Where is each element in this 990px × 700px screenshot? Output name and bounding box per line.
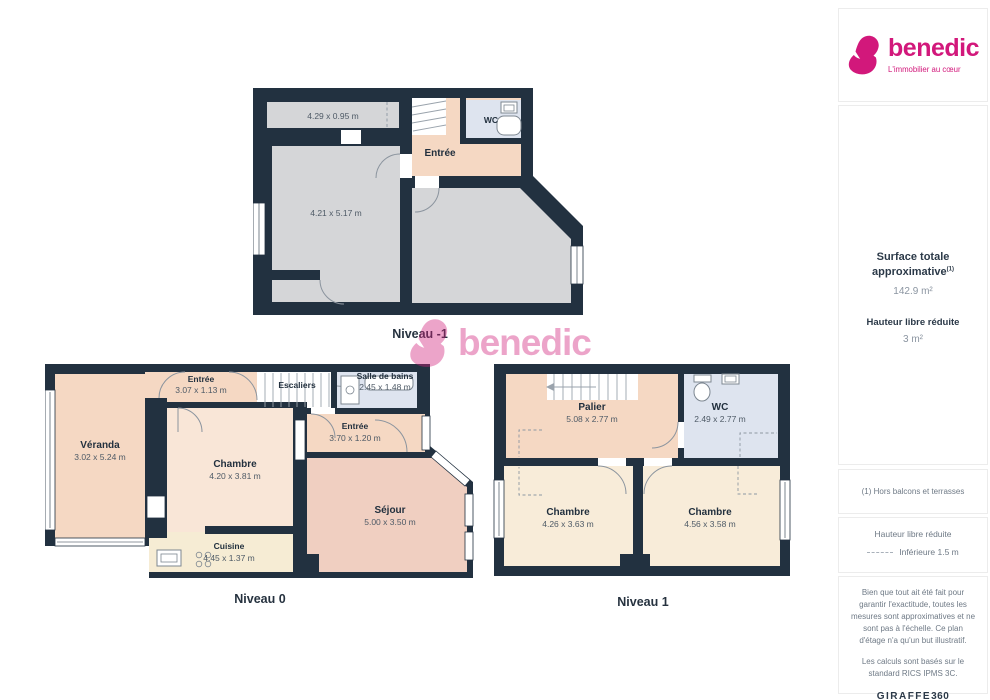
room-label-palier: Palier	[578, 402, 605, 413]
disclaimer-box: Bien que tout ait été fait pour garantir…	[838, 576, 988, 694]
legend-item: Inférieure 1.5 m	[839, 547, 987, 557]
room-label-veranda: Véranda	[80, 440, 120, 451]
giraffe360-name: GIRAFFE	[877, 691, 931, 700]
wc-fixtures-icon	[497, 102, 521, 135]
brand-logo-box: benedic L'immobilier au cœur	[838, 8, 988, 102]
surface-footnote-ref: (1)	[947, 266, 954, 272]
brand-watermark: benedic	[408, 318, 591, 368]
room-label-chambre-1: Chambre	[546, 507, 590, 518]
brand-heart-icon	[847, 34, 881, 76]
floorplan-niveau-0: Véranda 3.02 x 5.24 m Entrée 3.07 x 1.13…	[45, 362, 477, 580]
floorplan-page: 4.29 x 0.95 m 4.21 x 5.17 m Entrée WC Ni…	[0, 0, 990, 700]
room-dims: 2.49 x 2.77 m	[694, 414, 746, 424]
room-label-entree: Entrée	[424, 148, 456, 159]
room-dims: 4.45 x 1.37 m	[203, 553, 255, 563]
brand-tagline: L'immobilier au cœur	[888, 65, 979, 74]
floorplan-niveau-minus1: 4.29 x 0.95 m 4.21 x 5.17 m Entrée WC	[253, 88, 587, 318]
surface-total-text: Surface totale approximative	[872, 251, 949, 278]
room-label-sejour: Séjour	[374, 505, 405, 516]
room-dims: 4.20 x 3.81 m	[209, 471, 261, 481]
legend-item-text: Inférieure 1.5 m	[899, 547, 959, 557]
giraffe360-suffix: 360	[931, 691, 949, 700]
floorplan-niveau-1: Palier 5.08 x 2.77 m WC 2.49 x 2.77 m Ch…	[492, 362, 794, 580]
room-dims: 3.70 x 1.20 m	[329, 433, 381, 443]
room-label-cuisine: Cuisine	[214, 541, 245, 551]
room-label-chambre: Chambre	[213, 459, 257, 470]
floor-label-niveau-1: Niveau 1	[571, 595, 715, 609]
surface-info-box: Surface totale approximative(1) 142.9 m²…	[838, 105, 988, 465]
room-dims: 4.29 x 0.95 m	[307, 111, 359, 121]
reduced-height-value: 3 m²	[839, 334, 987, 345]
brand-logo-text: benedic L'immobilier au cœur	[888, 36, 979, 74]
room-label-wc: WC	[712, 402, 729, 413]
floor-label-niveau-minus1: Niveau -1	[348, 327, 492, 341]
giraffe360-logo: GIRAFFE360	[850, 689, 976, 700]
reduced-height-label: Hauteur libre réduite	[839, 317, 987, 328]
surface-total-label: Surface totale approximative(1)	[839, 250, 987, 280]
room-dims: 3.02 x 5.24 m	[74, 452, 126, 462]
legend-box: Hauteur libre réduite Inférieure 1.5 m	[838, 517, 988, 573]
room-label-chambre-2: Chambre	[688, 507, 732, 518]
room-dims: 4.21 x 5.17 m	[310, 208, 362, 218]
legend-title: Hauteur libre réduite	[839, 529, 987, 539]
brand-heart-icon	[408, 318, 450, 368]
room-dims: 2.45 x 1.48 m	[359, 382, 411, 392]
room-dims: 5.00 x 3.50 m	[364, 517, 416, 527]
footnote-text: (1) Hors balcons et terrasses	[862, 487, 965, 496]
dashed-line-icon	[867, 552, 893, 553]
brand-name: benedic	[888, 36, 979, 61]
room-label-escaliers: Escaliers	[278, 380, 316, 390]
room-label-entree: Entrée	[188, 374, 215, 384]
floor-label-niveau-0: Niveau 0	[188, 592, 332, 606]
room-label-salle-de-bains: Salle de bains	[357, 371, 414, 381]
disclaimer-accuracy: Bien que tout ait été fait pour garantir…	[850, 587, 976, 647]
room-dims: 4.56 x 3.58 m	[684, 519, 736, 529]
room-label-wc: WC	[484, 115, 498, 125]
disclaimer-standard: Les calculs sont basés sur le standard R…	[850, 656, 976, 680]
footnote-box: (1) Hors balcons et terrasses	[838, 469, 988, 514]
room-dims: 4.26 x 3.63 m	[542, 519, 594, 529]
room-dims: 5.08 x 2.77 m	[566, 414, 618, 424]
room-dims: 3.07 x 1.13 m	[175, 385, 227, 395]
surface-total-value: 142.9 m²	[839, 286, 987, 297]
room-label-entree-2: Entrée	[342, 421, 369, 431]
